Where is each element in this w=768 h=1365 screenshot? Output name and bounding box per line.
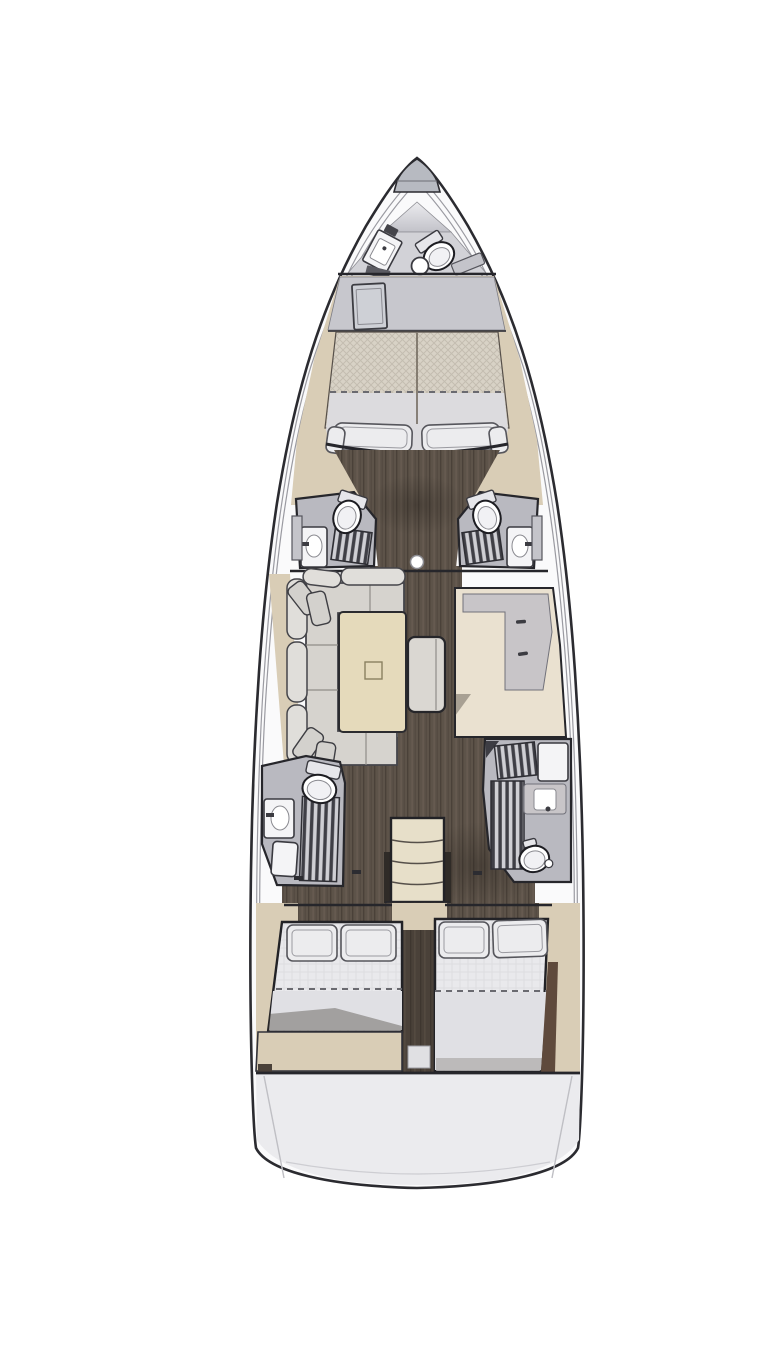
- galley: [455, 588, 566, 737]
- forward-head-starboard-faucet-icon: [525, 542, 532, 546]
- aft-head-port-faucet-icon: [266, 813, 274, 817]
- bow-toilet-seat-ring: [412, 258, 429, 275]
- door-stop-mark: [294, 876, 303, 880]
- yacht-floorplan-canvas: [0, 0, 768, 1365]
- engine-access-hatch: [408, 1046, 430, 1068]
- stern-platform: [256, 1073, 580, 1185]
- aft-head-starboard-faucet-icon: [546, 807, 551, 812]
- aft-head-port-basin: [271, 806, 289, 830]
- aft-head-starboard-shelf: [538, 743, 568, 781]
- mast-post: [411, 556, 424, 569]
- aft-head-starboard-shower-grate-top: [494, 742, 537, 779]
- door-stop-mark: [473, 871, 482, 875]
- bolster-port: [325, 426, 345, 454]
- aft-head-starboard-basin: [534, 789, 556, 810]
- door-stop-mark: [352, 870, 361, 874]
- aft-head-port-shower-grate: [300, 796, 340, 881]
- aft-cabin-starboard: [435, 919, 558, 1072]
- aft-berth-starboard-pillows: [439, 919, 548, 958]
- sofa-backrest-top: [341, 568, 405, 585]
- forward-head-starboard-cabinet: [532, 516, 542, 560]
- forward-head-starboard: [458, 490, 542, 568]
- anchor-locker-cap: [394, 159, 440, 192]
- companionway-steps: [391, 818, 444, 902]
- sofa-backrest-cushion: [287, 642, 307, 702]
- forward-head-starboard-shower-grate: [462, 528, 503, 565]
- ottoman-cushion: [408, 637, 445, 712]
- aft-head-starboard: [483, 739, 571, 882]
- aft-berth-port-pillows: [287, 925, 396, 961]
- bench-corner-step: [258, 1064, 272, 1072]
- ottoman-seat: [408, 637, 445, 712]
- aft-head-port: [262, 756, 345, 886]
- floor-shadow-forward: [369, 475, 465, 535]
- aft-cabin-port-bench: [256, 1032, 402, 1071]
- forward-head-port: [292, 490, 376, 568]
- forward-head-port-cabinet: [292, 516, 302, 560]
- bolster-starboard: [488, 426, 508, 454]
- galley-drawer-handle: [516, 620, 526, 624]
- forward-cabin-locker-door: [352, 283, 387, 330]
- aft-berth-starboard-shadow: [436, 1058, 542, 1071]
- saloon-table-top: [339, 612, 406, 732]
- saloon-table: [339, 612, 406, 732]
- aft-head-port-seat: [271, 841, 298, 877]
- forward-head-port-faucet-icon: [302, 542, 309, 546]
- floorplan-drawing: [0, 0, 768, 1365]
- forward-head-port-shower-grate: [331, 528, 372, 565]
